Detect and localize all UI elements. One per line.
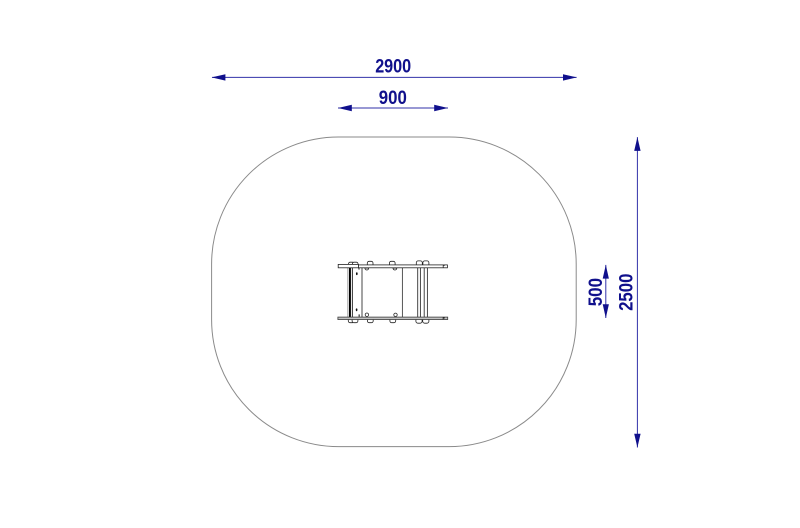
svg-text:2500: 2500: [616, 274, 637, 311]
svg-text:500: 500: [586, 278, 607, 306]
svg-text:2900: 2900: [375, 56, 411, 77]
svg-text:900: 900: [379, 88, 407, 109]
